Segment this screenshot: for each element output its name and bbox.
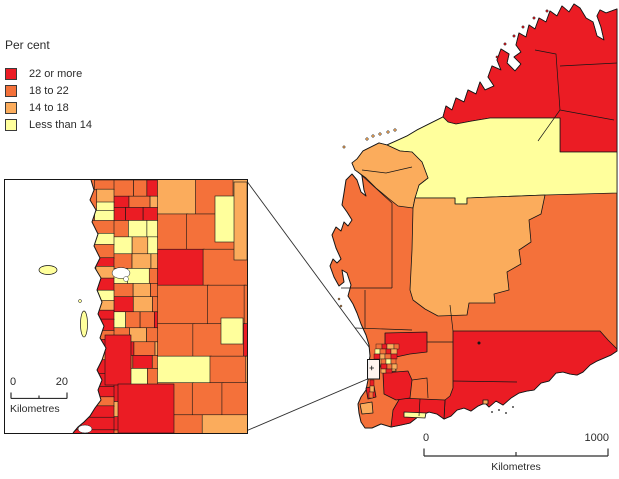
- garden-island: [81, 311, 88, 337]
- inset-scale-bar-rule: [10, 391, 68, 399]
- inset-region-cells: [65, 180, 247, 433]
- scale-unit-label: Kilometres: [10, 403, 68, 415]
- legend-swatch: [5, 119, 17, 131]
- legend-item: 22 or more: [5, 65, 92, 82]
- legend-item: 14 to 18: [5, 99, 92, 116]
- map-region: [483, 400, 488, 404]
- map-region: [383, 371, 412, 400]
- legend-item-label: Less than 14: [29, 119, 92, 131]
- map-figure: Per cent 22 or more18 to 2214 to 18Less …: [0, 0, 619, 479]
- legend-item-label: 22 or more: [29, 68, 82, 80]
- legend-swatch: [5, 85, 17, 97]
- scale-end-label: 1000: [585, 433, 609, 444]
- inset-scale-bar: 0 20 Kilometres: [10, 377, 68, 415]
- legend: Per cent 22 or more18 to 2214 to 18Less …: [5, 38, 92, 133]
- scale-end-label: 20: [56, 377, 68, 388]
- legend-swatch: [5, 68, 17, 80]
- carnac-island: [79, 300, 82, 303]
- scale-start-label: 0: [10, 377, 16, 388]
- map-region: [404, 412, 426, 418]
- peel-inlet: [78, 425, 92, 433]
- legend-swatch: [5, 102, 17, 114]
- map-region: [444, 331, 617, 419]
- legend-item-label: 18 to 22: [29, 85, 69, 97]
- swan-river-tail: [124, 277, 129, 282]
- rottnest-island: [39, 266, 57, 275]
- map-region: [360, 402, 373, 414]
- legend-title: Per cent: [5, 38, 92, 52]
- legend-item: 18 to 22: [5, 82, 92, 99]
- perth-extent-box: [368, 360, 380, 380]
- main-scale-bar: 0 1000 Kilometres: [423, 433, 609, 473]
- scale-start-label: 0: [423, 433, 429, 444]
- legend-rows: 22 or more18 to 2214 to 18Less than 14: [5, 65, 92, 133]
- inset-map: 0 20 Kilometres: [4, 179, 248, 434]
- legend-item-label: 14 to 18: [29, 102, 69, 114]
- legend-item: Less than 14: [5, 116, 92, 133]
- town-dot: [478, 342, 481, 345]
- leader-line-lower: [246, 379, 368, 431]
- main-scale-bar-rule: [423, 447, 609, 457]
- scale-unit-label: Kilometres: [423, 461, 609, 473]
